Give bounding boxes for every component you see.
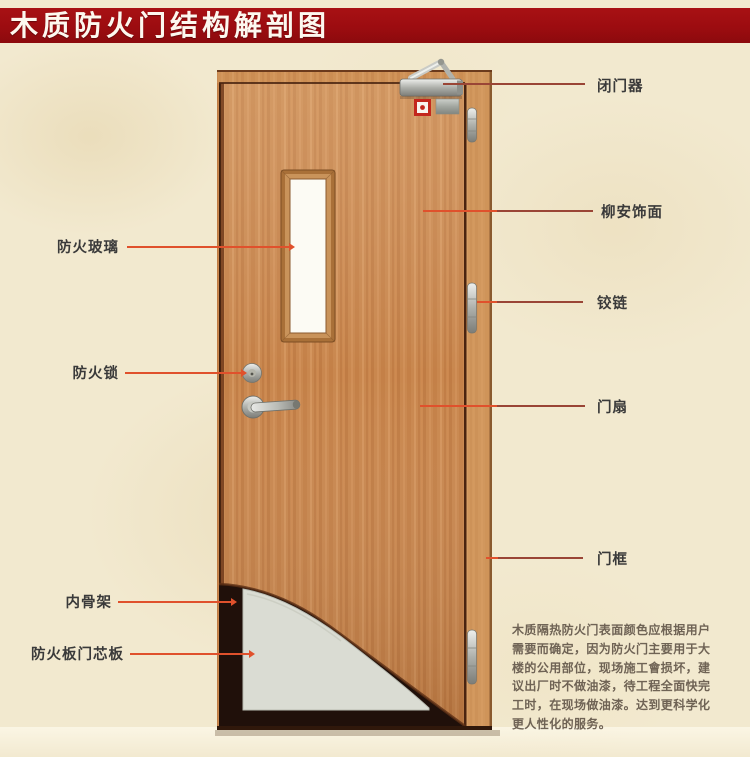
fire-door-diagram: 木质防火门结构解剖图 [0,0,750,757]
description-line: 议出厂时不做油漆，待工程全面快完 [512,677,726,696]
title-bar: 木质防火门结构解剖图 [0,8,750,43]
leader-inner-skeleton-arrow [231,598,237,606]
leader-hinge [497,301,583,303]
leader-fire-board-core-arrow [249,650,255,658]
door-closer [400,59,463,99]
leader-veneer [497,210,593,212]
leader-fire-lock [125,372,241,374]
description-line: 更人性化的服务。 [512,715,726,734]
fire-glass-panel [281,170,335,342]
leader-door-frame [498,557,583,559]
leader-door-closer [443,83,585,85]
leader-fire-glass [127,246,289,248]
label-door-closer: 闭门器 [597,78,644,96]
leader-fire-lock-arrow [241,369,247,377]
alarm-device [416,101,430,115]
leader-hinge-on-door [477,301,497,303]
description-line: 木质隔热防火门表面颜色应根据用户 [512,621,726,640]
leader-door-leaf-on-door [420,405,497,407]
hinge-middle [468,283,477,333]
description-line: 工时，在现场做油漆。达到更科学化 [512,696,726,715]
leader-veneer-on-door [423,210,497,212]
description-line: 需要而确定，因为防火门主要用于大 [512,640,726,659]
description-line: 楼的公用部位，现场施工會损坏，建 [512,659,726,678]
label-door-frame: 门框 [597,551,628,569]
label-hinge: 铰链 [597,295,628,313]
leader-inner-skeleton [118,601,231,603]
label-fire-glass: 防火玻璃 [27,239,119,257]
strike-plate [436,99,459,114]
door-photo [215,58,500,750]
label-veneer: 柳安饰面 [601,204,663,222]
leader-door-leaf [497,405,585,407]
label-fire-board-core: 防火板门芯板 [31,646,123,664]
hinge-bottom [468,630,477,684]
label-inner-skeleton: 内骨架 [20,594,112,612]
label-door-leaf: 门扇 [597,399,628,417]
description-text: 木质隔热防火门表面颜色应根据用户 需要而确定，因为防火门主要用于大 楼的公用部位… [512,621,726,734]
page-title: 木质防火门结构解剖图 [10,8,330,43]
label-fire-lock: 防火锁 [27,365,119,383]
leader-door-frame-on-door [486,557,498,559]
leader-fire-board-core [130,653,249,655]
hinge-top [468,108,477,142]
leader-fire-glass-arrow [289,243,295,251]
